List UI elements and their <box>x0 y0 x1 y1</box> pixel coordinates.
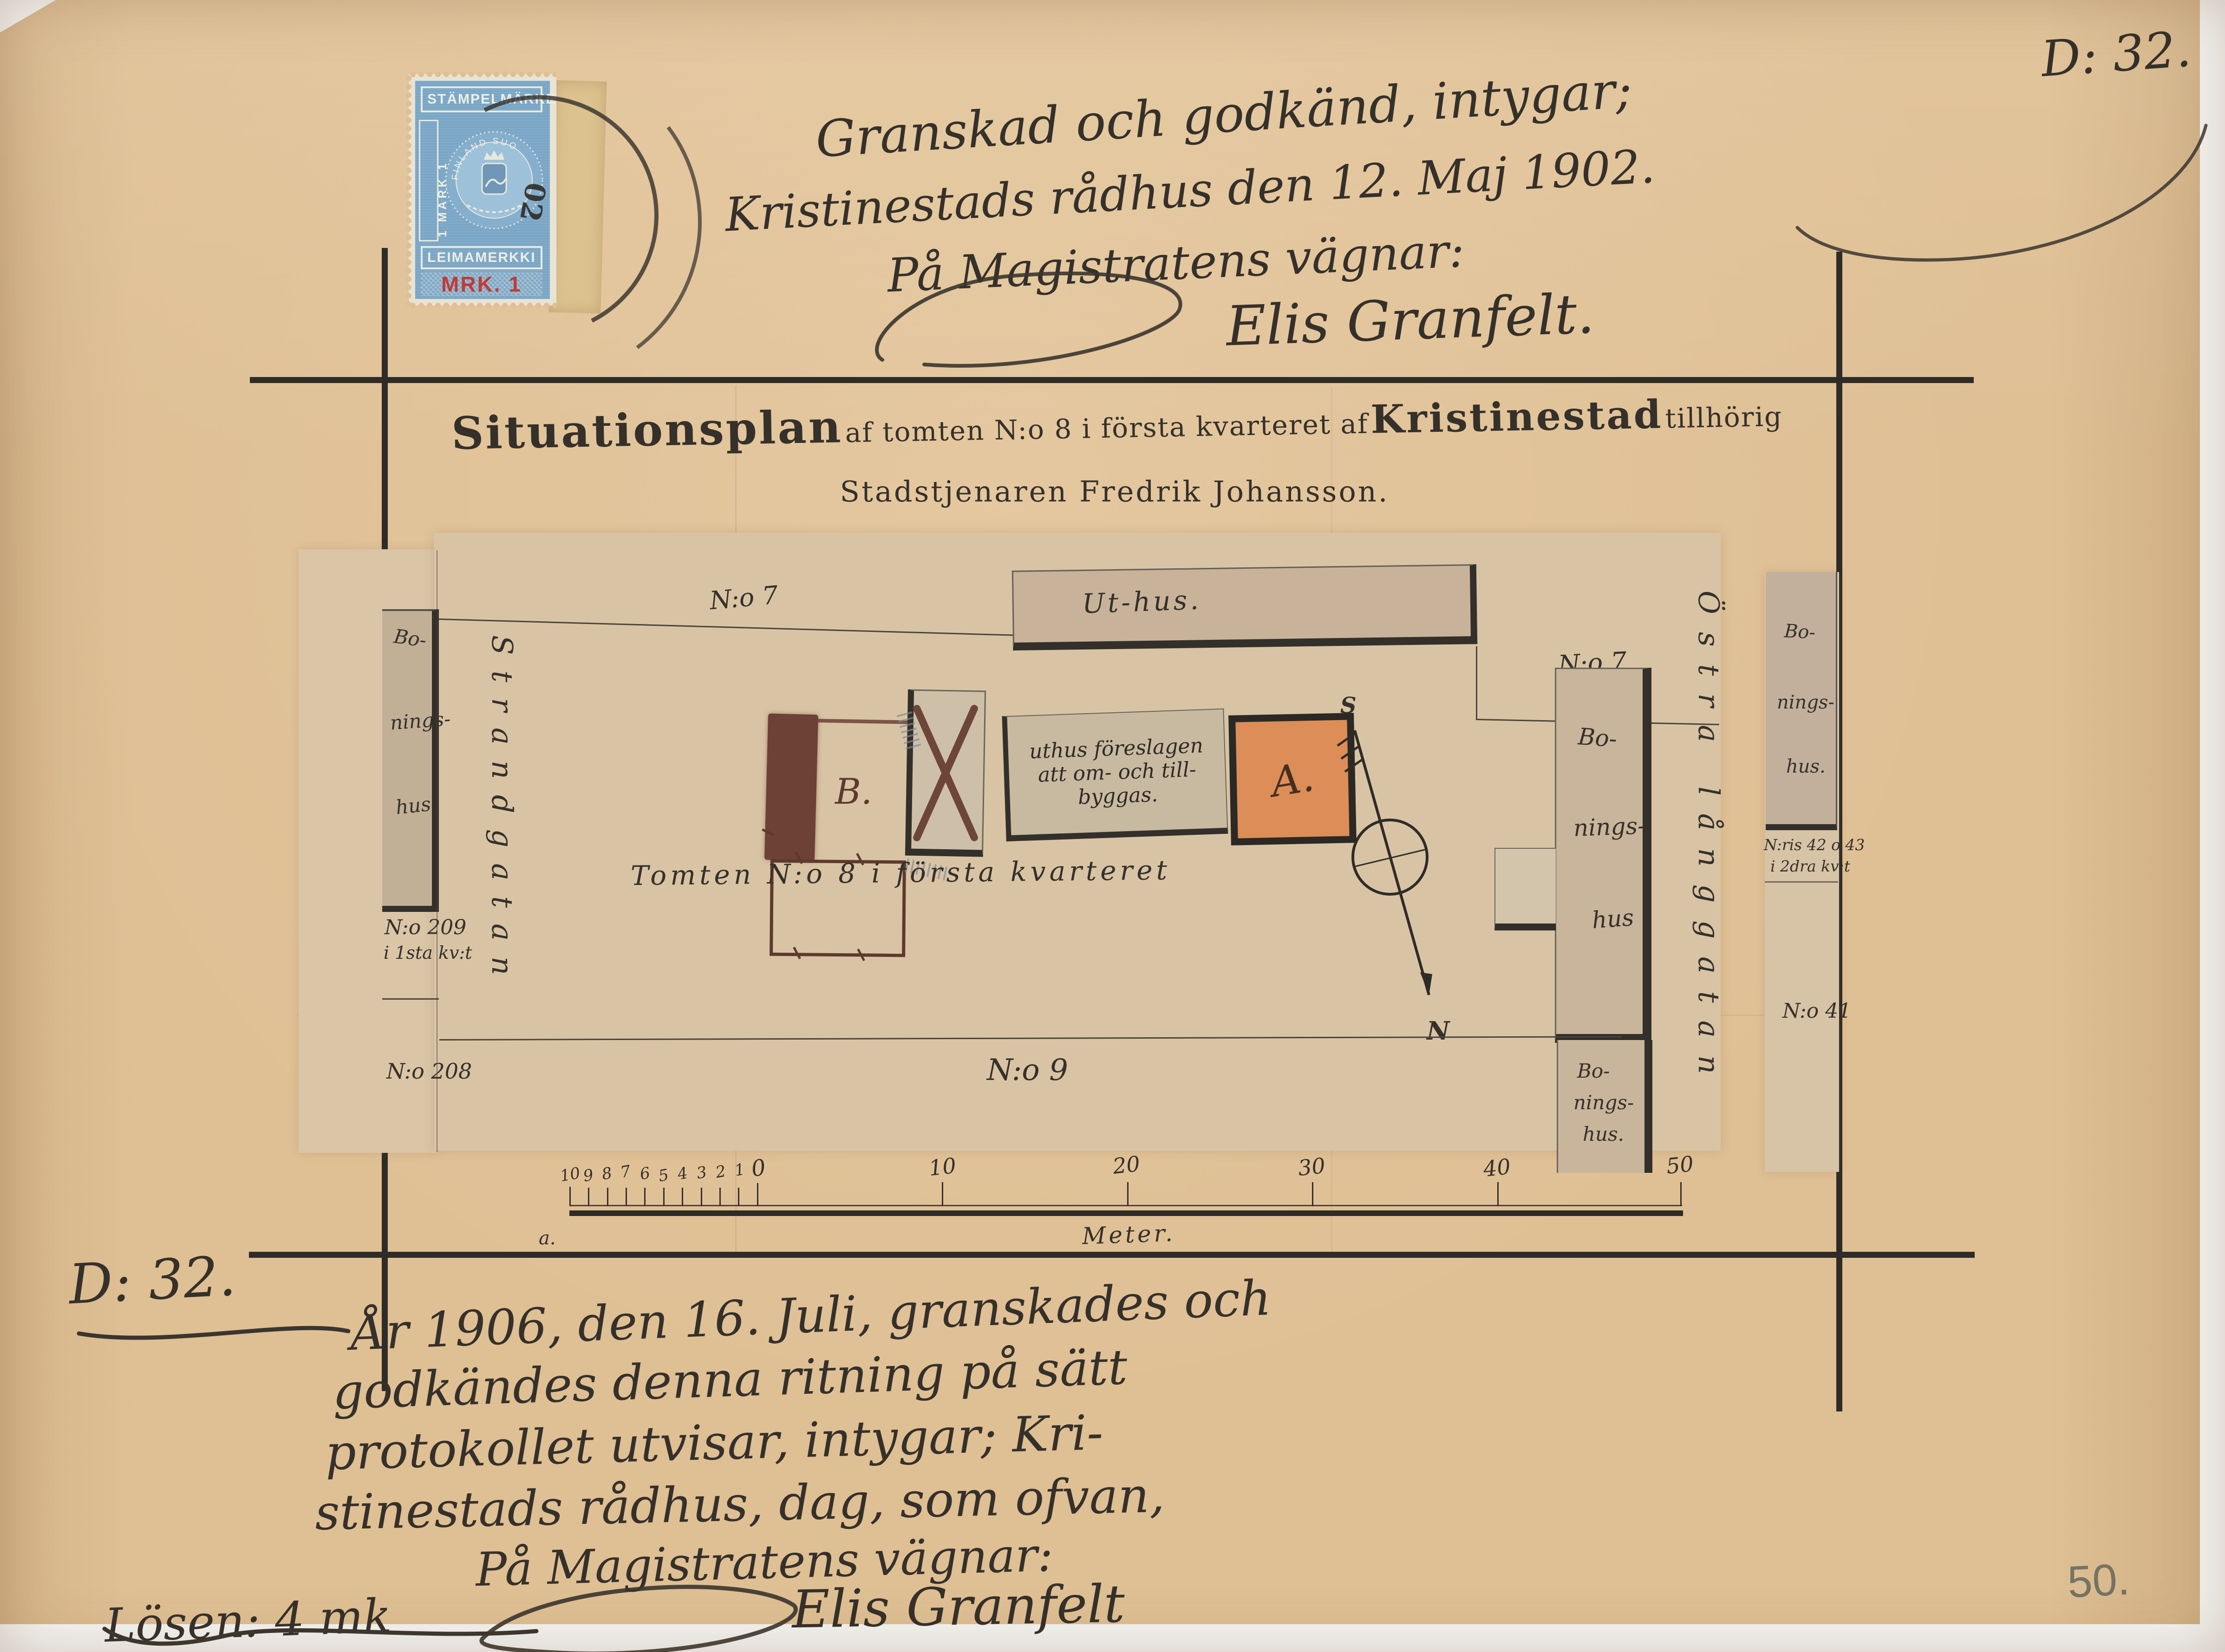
scale-subtick <box>626 1188 627 1206</box>
scale-major-label-40: 40 <box>1482 1154 1512 1182</box>
plan-title-line1: Situationsplan af tomten N:o 8 i första … <box>436 384 1798 460</box>
west-lot-divider <box>382 998 439 1000</box>
scale-major-label-10: 10 <box>927 1153 957 1181</box>
uthus-label: Ut-hus. <box>1082 584 1202 620</box>
street-east-ostra-langgatan: Östra långgatan <box>1692 591 1726 1092</box>
scale-major-label-50: 50 <box>1665 1151 1695 1179</box>
scale-unit-label: Meter. <box>1082 1220 1176 1250</box>
scale-subtick <box>682 1188 683 1206</box>
approval-1906-signature: Elis Granfelt <box>791 1574 1125 1640</box>
west-dwelling-label-1: Bo- <box>392 624 428 651</box>
scale-major-tick-30 <box>1312 1182 1313 1206</box>
east-upper-label-2: nings- <box>1573 812 1646 841</box>
scale-sublabel: 7 <box>619 1162 632 1182</box>
north-boundary-jog <box>1476 646 1477 720</box>
annotation-building: uthus föreslagen att om- och till- bygga… <box>1002 709 1228 842</box>
east-attached-annex <box>1494 848 1556 930</box>
postmark-date: 02 <box>513 180 552 224</box>
building-a-label: A. <box>1268 752 1318 806</box>
east-strip-divider <box>1765 881 1838 883</box>
scale-subtick <box>663 1188 665 1206</box>
scanned-situation-plan-document: STÄMPELMÄRKE 1 MARK 1 FINLAND SUO <box>0 0 2225 1652</box>
west-dwelling-label-2: nings- <box>389 708 451 735</box>
east-strip-label-1: Bo- <box>1784 620 1816 643</box>
building-b-solid-wing <box>764 714 818 861</box>
frame-line-bottom <box>249 1252 1975 1258</box>
uthus-building <box>1012 564 1477 650</box>
scale-subtick <box>644 1188 646 1206</box>
archival-ref-top-right: D: 32. <box>2039 20 2193 88</box>
west-strip-edge <box>437 550 437 1152</box>
title-city: Kristinestad <box>1370 391 1664 442</box>
west-lot-209: N:o 209 <box>385 916 466 939</box>
approval-1902-signature: Elis Granfelt. <box>1225 281 1595 358</box>
scale-sublabel: 1 <box>733 1160 746 1180</box>
annotation-line-2: att om- och till- <box>1037 758 1196 787</box>
archival-ref-flourish-bottom <box>70 1310 372 1352</box>
west-dwelling-label-3: hus. <box>395 792 438 819</box>
scale-subtick <box>569 1187 571 1206</box>
compass-north-label: N <box>1427 1016 1449 1046</box>
east-strip-lots-quarter: i 2dra kv:t <box>1770 857 1850 875</box>
scale-sublabel: 9 <box>582 1165 595 1185</box>
scale-sublabel: 4 <box>676 1164 689 1184</box>
east-lower-label-2: nings- <box>1573 1091 1634 1114</box>
compass-south-label: S <box>1340 693 1357 719</box>
scale-major-label-30: 30 <box>1297 1153 1326 1181</box>
east-upper-label-1: Bo- <box>1577 723 1618 753</box>
compass-icon <box>1311 686 1464 1048</box>
building-b-label: B. <box>835 771 872 812</box>
approval-1906-line1: År 1906, den 16. Juli, granskades och <box>350 1269 1272 1361</box>
annotation-line-3: byggas. <box>1077 783 1158 809</box>
archival-ref-flourish-top <box>1788 107 2225 302</box>
west-lot-209-quarter: i 1sta kv:t <box>384 943 472 963</box>
east-upper-label-3: hus <box>1591 904 1635 934</box>
west-lot-208: N:o 208 <box>386 1059 472 1084</box>
scale-zero-label: 0 <box>750 1154 767 1182</box>
east-strip-lot-41: N:o 41 <box>1782 999 1851 1023</box>
lot-no7-left: N:o 7 <box>709 580 779 616</box>
scale-bar-upper-line <box>569 1205 1682 1206</box>
title-word-situationsplan: Situationsplan <box>451 400 843 460</box>
scale-sublabel: 3 <box>695 1163 708 1183</box>
east-strip-label-3: hus. <box>1786 756 1826 777</box>
east-upper-dwelling <box>1555 668 1651 1043</box>
scale-subtick <box>738 1188 739 1206</box>
title-segment: af tomten N:o 8 i första kvarteret af <box>845 408 1369 449</box>
scale-sublabel: 10 <box>559 1164 582 1186</box>
scale-subtick <box>607 1188 608 1206</box>
scale-major-label-20: 20 <box>1111 1151 1141 1179</box>
plan-title-line2: Stadstjenaren Fredrik Johansson. <box>697 475 1533 508</box>
pencil-number: 50. <box>2066 1554 2131 1608</box>
scale-subtick <box>719 1188 721 1206</box>
scale-subtick <box>701 1188 702 1206</box>
east-lower-label-3: hus. <box>1583 1123 1624 1145</box>
tomten-8-label: Tomten N:o 8 i första kvarteret <box>631 854 1171 891</box>
scale-sublabel: 8 <box>600 1164 613 1184</box>
scale-major-tick-50 <box>1680 1182 1682 1206</box>
scan-corner-top-left <box>0 0 56 33</box>
frame-line-top <box>250 377 1974 383</box>
scale-sublabel: 6 <box>639 1164 652 1184</box>
scale-mark-a: a. <box>539 1228 556 1249</box>
scale-zero-tick <box>757 1183 758 1206</box>
fee-underline-flourish <box>95 1615 550 1650</box>
archival-ref-bottom-left: D: 32. <box>67 1244 237 1317</box>
revenue-stamp-group: STÄMPELMÄRKE 1 MARK 1 FINLAND SUO <box>409 74 613 316</box>
scale-sublabel: 2 <box>714 1162 727 1182</box>
street-west-strandgatan: Strandgatan <box>485 635 519 991</box>
east-lower-label-1: Bo- <box>1577 1060 1610 1082</box>
east-strip-lots-42-43: N:ris 42 o 43 <box>1764 836 1865 854</box>
lot-no9-label: N:o 9 <box>987 1053 1068 1087</box>
scale-major-tick-10 <box>942 1182 943 1206</box>
west-dwelling-building <box>382 609 439 912</box>
east-strip-label-2: nings- <box>1777 692 1834 713</box>
scale-bar-lower-line <box>569 1210 1683 1216</box>
scale-major-tick-20 <box>1127 1182 1129 1206</box>
scale-major-tick-40 <box>1497 1182 1499 1206</box>
title-end: tillhörig <box>1665 401 1783 434</box>
scale-subtick <box>588 1188 589 1206</box>
scale-sublabel: 5 <box>657 1165 670 1185</box>
